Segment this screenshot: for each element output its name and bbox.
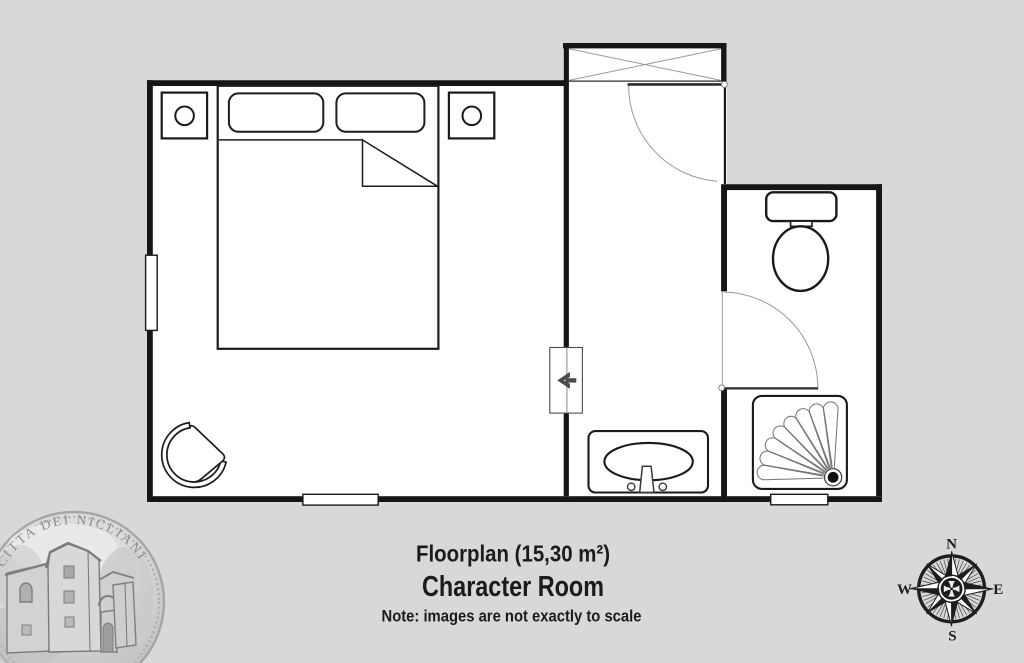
svg-text:Note: images are not exactly t: Note: images are not exactly to scale — [382, 606, 642, 625]
svg-text:Floorplan (15,30 m²): Floorplan (15,30 m²) — [416, 541, 610, 567]
svg-text:Character Room: Character Room — [422, 571, 604, 603]
svg-text:W: W — [897, 582, 912, 598]
svg-text:S: S — [948, 629, 956, 645]
svg-text:E: E — [993, 582, 1003, 598]
svg-text:N: N — [946, 536, 957, 552]
